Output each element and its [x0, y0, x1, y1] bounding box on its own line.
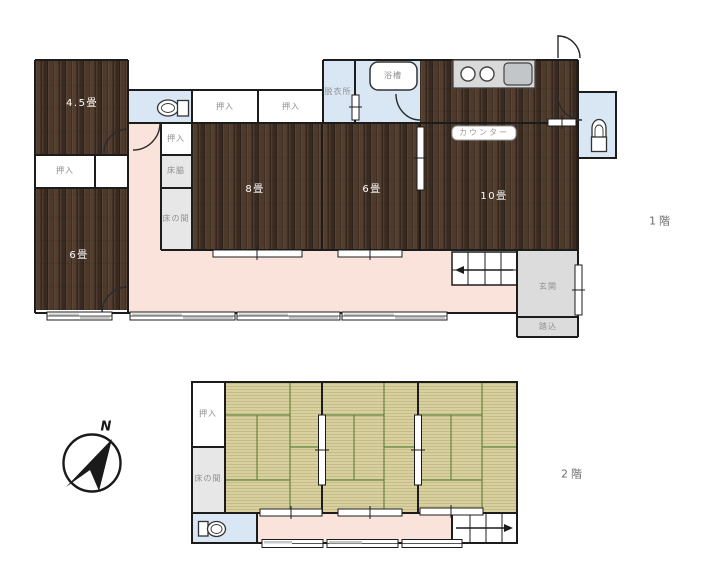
- label-counter: カウンター: [459, 129, 509, 137]
- label-closet-1f-top-2: 押入: [282, 103, 300, 111]
- label-dressing-room: 脱衣所: [325, 88, 352, 96]
- room-2f-tatami-3: [418, 382, 517, 513]
- label-compass-north: N: [101, 421, 112, 434]
- label-tokowaki-1f: 床脇: [167, 167, 185, 175]
- label-closet-1f-left: 押入: [56, 167, 74, 175]
- label-entrance-step: 踏込: [539, 323, 557, 331]
- label-closet-1f-top-1: 押入: [216, 103, 234, 111]
- label-room-6-center: 6畳: [362, 185, 381, 195]
- label-room-6-left: 6畳: [69, 251, 88, 261]
- label-closet-1f-strip: 押入: [167, 135, 185, 143]
- label-room-10: 10畳: [480, 192, 507, 202]
- label-tokonoma-1f: 床の間: [163, 215, 190, 223]
- room-2f-tatami-2: [322, 382, 418, 513]
- label-room-8: 8畳: [245, 185, 264, 195]
- hallway-1f-horizontal: [161, 250, 452, 313]
- label-floor-1: 1階: [649, 216, 673, 227]
- compass-icon: [64, 435, 121, 492]
- room-1f-10-dk: [420, 60, 578, 250]
- hallway-1f-under-stairs: [452, 285, 517, 313]
- toilet-room-1f-left: [128, 90, 192, 123]
- stairs-1f: [452, 252, 517, 285]
- toilet-room-2f: [192, 513, 257, 543]
- room-1f-6-left: [35, 188, 128, 310]
- label-entrance: 玄関: [539, 283, 557, 291]
- toilet-room-1f-right: [578, 92, 616, 158]
- label-closet-2f: 押入: [199, 410, 217, 418]
- room-2f-tatami-1: [225, 382, 322, 513]
- closet-1f-left-2: [95, 155, 128, 188]
- corridor-2f: [257, 513, 452, 543]
- label-tokonoma-2f: 床の間: [195, 475, 222, 483]
- label-floor-2: 2階: [561, 469, 585, 480]
- label-room-4_5: 4.5畳: [66, 99, 98, 109]
- label-bathtub: 浴槽: [384, 72, 402, 80]
- stairs-2f: [452, 513, 517, 543]
- window-icons-1f: [47, 312, 447, 320]
- floor-plan-canvas: 4.5畳 6畳 8畳 6畳 10畳 押入 押入 押入 押入 床脇 床の間 脱衣所…: [0, 0, 710, 580]
- hallway-1f-vertical: [128, 123, 161, 313]
